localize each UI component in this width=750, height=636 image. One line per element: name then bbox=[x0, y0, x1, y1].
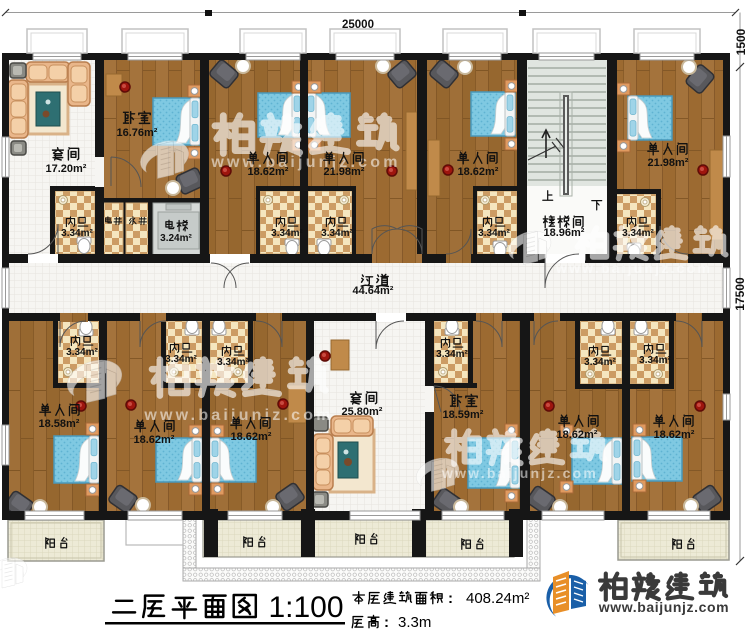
svg-text:17500: 17500 bbox=[733, 277, 747, 311]
svg-text:16.76m²: 16.76m² bbox=[117, 127, 158, 139]
svg-text:3.34m²: 3.34m² bbox=[639, 355, 671, 366]
svg-text:18.58m²: 18.58m² bbox=[39, 418, 80, 430]
svg-text:3.34m²: 3.34m² bbox=[321, 228, 353, 239]
svg-text::: : bbox=[384, 614, 389, 631]
svg-text:1:100: 1:100 bbox=[268, 591, 343, 624]
svg-text::: : bbox=[448, 590, 453, 607]
svg-text:44.64m²: 44.64m² bbox=[353, 285, 394, 297]
svg-text:25000: 25000 bbox=[342, 19, 374, 31]
svg-text:1500: 1500 bbox=[734, 28, 748, 55]
svg-text:3.34m²: 3.34m² bbox=[165, 354, 197, 365]
svg-text:18.62m²: 18.62m² bbox=[557, 429, 598, 441]
svg-text:17.20m²: 17.20m² bbox=[46, 163, 87, 175]
svg-text:18.62m²: 18.62m² bbox=[134, 434, 175, 446]
svg-text:3.34m²: 3.34m² bbox=[622, 228, 654, 239]
svg-text:18.96m²: 18.96m² bbox=[544, 227, 585, 239]
svg-text:21.98m²: 21.98m² bbox=[324, 166, 365, 178]
svg-text:www.baijunjz.com: www.baijunjz.com bbox=[555, 260, 712, 276]
svg-text:www.baijunjz.com: www.baijunjz.com bbox=[210, 154, 400, 171]
svg-text:3.34m²: 3.34m² bbox=[436, 349, 468, 360]
svg-text:18.62m²: 18.62m² bbox=[458, 166, 499, 178]
svg-text:25.80m²: 25.80m² bbox=[342, 406, 383, 418]
svg-text:18.62m²: 18.62m² bbox=[248, 166, 289, 178]
svg-text:3.3m: 3.3m bbox=[398, 614, 431, 631]
svg-text:18.59m²: 18.59m² bbox=[443, 409, 484, 421]
svg-text:3.34m²: 3.34m² bbox=[217, 357, 249, 368]
svg-text:18.62m²: 18.62m² bbox=[654, 429, 695, 441]
svg-text:3.34m²: 3.34m² bbox=[584, 357, 616, 368]
svg-text:3.34m²: 3.34m² bbox=[478, 228, 510, 239]
svg-text:www.baijunjz.com: www.baijunjz.com bbox=[598, 599, 729, 615]
svg-text:3.24m²: 3.24m² bbox=[160, 233, 192, 244]
svg-text:www.baijunjz.com: www.baijunjz.com bbox=[441, 465, 598, 481]
svg-text:3.34m²: 3.34m² bbox=[61, 228, 93, 239]
svg-text:21.98m²: 21.98m² bbox=[648, 157, 689, 169]
svg-text:18.62m²: 18.62m² bbox=[231, 431, 272, 443]
svg-text:3.34m²: 3.34m² bbox=[66, 347, 98, 358]
svg-text:3.34m²: 3.34m² bbox=[271, 228, 303, 239]
svg-text:408.24m²: 408.24m² bbox=[466, 590, 529, 607]
